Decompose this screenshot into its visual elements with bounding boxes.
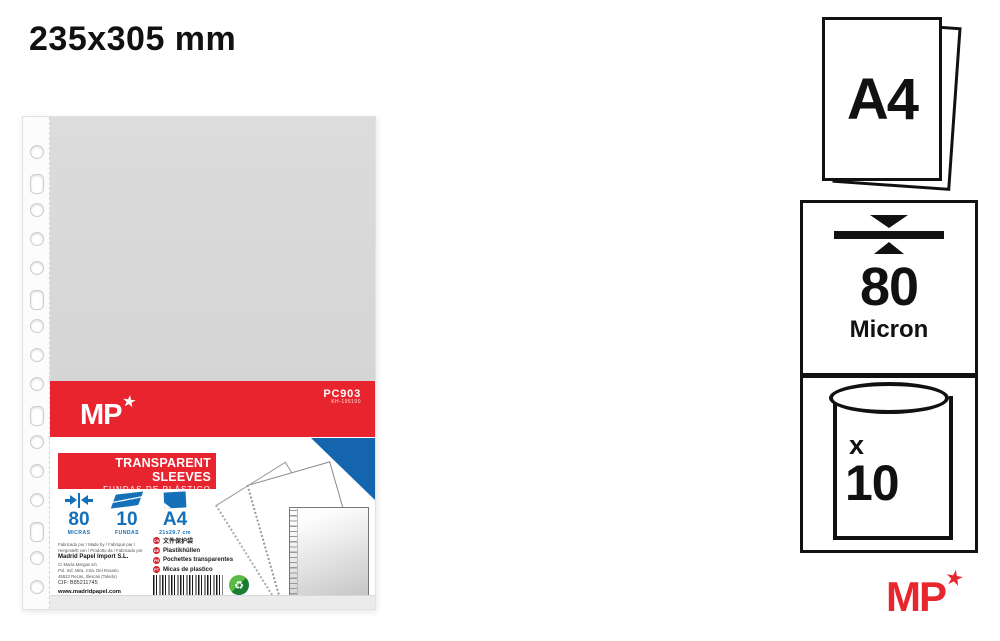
- lang-row-de: DE Plastikhüllen: [153, 547, 233, 554]
- sleeve-gray-body: [50, 117, 375, 381]
- punch-hole: [30, 522, 44, 542]
- punch-hole: [30, 174, 44, 194]
- punch-hole: [30, 580, 44, 594]
- punch-hole: [30, 232, 44, 246]
- sleeve-illustration-front: [289, 507, 369, 601]
- punch-hole: [30, 377, 44, 391]
- sleeve-illustration-holes: [290, 508, 298, 600]
- lang-row-fr: FR Pochettes transparentes: [153, 557, 233, 564]
- punch-hole: [30, 319, 44, 333]
- punch-hole: [30, 290, 44, 310]
- thickness-gauge-icon: [834, 215, 944, 254]
- spec-thickness-value: 80: [68, 510, 89, 529]
- punch-hole: [30, 406, 44, 426]
- product-code-sub: KH-195190: [323, 400, 361, 406]
- punch-hole: [30, 203, 44, 217]
- page-title: 235x305 mm: [29, 20, 236, 59]
- spec-thickness: 80 MICRAS: [55, 491, 103, 536]
- lang-text-cn: 文件保护袋: [163, 536, 193, 545]
- spec-count: 10 FUNDAS: [103, 491, 151, 536]
- brand-logo-footer: MP★: [886, 566, 964, 621]
- punch-hole: [30, 145, 44, 159]
- brand-logo: MP★: [80, 393, 134, 432]
- footer-brand-star-icon: ★: [943, 565, 966, 593]
- micron-badge: 80 Micron: [800, 200, 978, 376]
- spec-icons-row: 80 MICRAS 10 FUNDAS A4 21x29.7 cm: [55, 491, 199, 536]
- spec-count-unit: FUNDAS: [115, 530, 139, 536]
- spec-count-value: 10: [116, 510, 137, 529]
- brand-text: MP: [80, 399, 122, 431]
- a4-label: A4: [847, 66, 917, 133]
- micron-value: 80: [860, 260, 918, 314]
- sleeve-bottom-edge: [50, 595, 375, 609]
- a4-size-badge: A4: [822, 14, 954, 186]
- barcode-bars: [153, 575, 223, 596]
- lang-badge-de: DE: [153, 547, 160, 554]
- spec-size-value: A4: [163, 510, 187, 529]
- product-title-box: TRANSPARENT SLEEVES FUNDAS DE PLÁSTICO B…: [58, 453, 216, 489]
- punch-hole: [30, 261, 44, 275]
- spec-size: A4 21x29.7 cm: [151, 491, 199, 536]
- lang-text-fr: Pochettes transparentes: [163, 557, 233, 563]
- lang-badge-pt: PT: [153, 566, 160, 573]
- punch-hole: [30, 551, 44, 565]
- thickness-icon: [65, 491, 94, 509]
- product-photo: MP★ PC903 KH-195190 TRANSPARENT SLEEVES …: [22, 116, 376, 610]
- manufacturer-cif: CIF: B85211745: [58, 580, 152, 587]
- manufacturer-name: Madrid Papel Import S.L.: [58, 554, 152, 562]
- recycle-glyph: ♻: [234, 579, 244, 592]
- spec-thickness-unit: MICRAS: [68, 530, 91, 536]
- footer-brand-text: MP: [886, 573, 945, 620]
- a4-sheet-icon: [164, 491, 186, 509]
- lang-row-cn: CN 文件保护袋: [153, 536, 233, 545]
- count-value: 10: [845, 454, 899, 512]
- lang-text-pt: Micas de plastico: [163, 567, 213, 573]
- punch-holes-strip: [23, 117, 50, 609]
- lang-text-de: Plastikhüllen: [163, 548, 200, 554]
- sleeves-stack-icon: [114, 491, 140, 509]
- green-point-icon: ♻: [229, 575, 249, 595]
- product-title-en: TRANSPARENT SLEEVES: [61, 456, 211, 485]
- count-badge: x 10: [800, 376, 978, 553]
- product-code-block: PC903 KH-195190: [323, 388, 361, 406]
- manufacturer-address3: 45523 Recas, Illescas (Toledo): [58, 574, 152, 580]
- sleeve-pocket-opening-icon: [829, 382, 949, 414]
- punch-hole: [30, 348, 44, 362]
- brand-star-icon: ★: [121, 392, 135, 410]
- a4-front-page-icon: A4: [822, 17, 942, 181]
- lang-badge-fr: FR: [153, 557, 160, 564]
- made-by-line2: Hergestellt von / Prodotto da / Fabricad…: [58, 548, 152, 554]
- lang-row-pt: PT Micas de plastico: [153, 566, 233, 573]
- punch-hole: [30, 435, 44, 449]
- lang-badge-cn: CN: [153, 537, 160, 544]
- punch-hole: [30, 493, 44, 507]
- language-list: CN 文件保护袋 DE Plastikhüllen FR Pochettes t…: [153, 536, 233, 576]
- label-red-band: MP★ PC903 KH-195190: [50, 381, 375, 437]
- micron-unit: Micron: [850, 316, 929, 344]
- punch-hole: [30, 464, 44, 478]
